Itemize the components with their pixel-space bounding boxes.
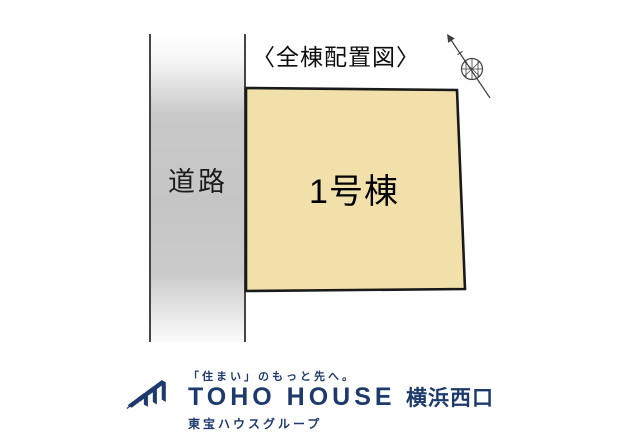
brand-group-name: 東宝ハウスグループ (188, 415, 322, 432)
road-label: 道路 (151, 160, 245, 199)
brand-text-block: 「住まい」のもっと先へ。 TOHO HOUSE 横浜西口 東宝ハウスグループ (188, 371, 494, 432)
toho-house-logo-icon (126, 377, 178, 427)
brand-name-line: TOHO HOUSE 横浜西口 (188, 385, 494, 413)
north-arrow-icon (440, 25, 500, 105)
diagram-title: 〈全棟配置図〉 (252, 38, 420, 72)
road-left-boundary-line (149, 34, 151, 342)
plot-label: 1号棟 (246, 88, 462, 288)
site-plan-page: 道路 〈全棟配置図〉 1号棟 「住まい」のもっと先へ。 (0, 0, 620, 437)
brand-branch: 横浜西口 (406, 387, 494, 410)
brand-footer: 「住まい」のもっと先へ。 TOHO HOUSE 横浜西口 東宝ハウスグループ (0, 371, 620, 432)
brand-name: TOHO HOUSE (188, 383, 396, 411)
road-area: 道路 (151, 34, 245, 342)
